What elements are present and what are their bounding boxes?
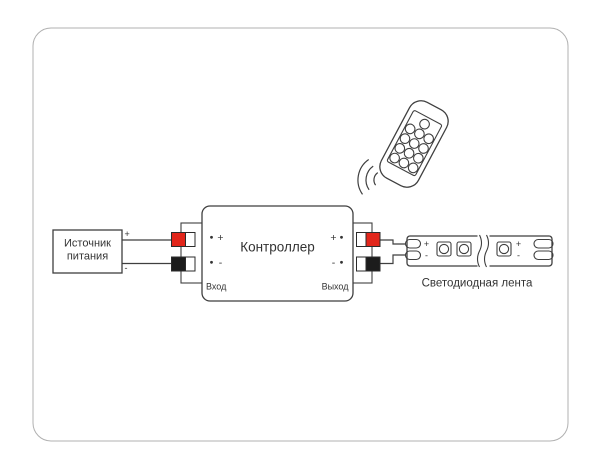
power-wires [122, 240, 172, 264]
strip-wire-plus [380, 240, 406, 244]
controller: Контроллер + - + - Вход Выход [202, 206, 353, 301]
input-plus-terminal [172, 233, 186, 247]
signal-wave-1 [374, 173, 378, 186]
remote-control [375, 96, 452, 192]
input-minus-label: - [219, 257, 223, 269]
strip-break [478, 234, 490, 268]
output-plus-dot [340, 236, 343, 239]
input-plus-label: + [217, 232, 223, 244]
signal-wave-2 [366, 166, 373, 190]
strip-left-plus-label: + [424, 239, 429, 249]
strip-wires [380, 240, 406, 264]
output-minus-dot [340, 261, 343, 264]
input-minus-clamp [186, 257, 196, 271]
strip-left-minus-label: - [425, 251, 428, 261]
strip-right-minus-label: - [517, 251, 520, 261]
controller-input-caption: Вход [206, 282, 227, 292]
power-plus-sign: + [125, 229, 130, 239]
input-plus-dot [210, 236, 213, 239]
output-plus-label: + [330, 232, 336, 244]
power-source-label-line1: Источник [64, 238, 111, 250]
output-minus-clamp [357, 257, 367, 271]
input-minus-dot [210, 261, 213, 264]
output-plus-clamp [357, 233, 367, 247]
input-connector [172, 223, 207, 283]
input-plus-clamp [186, 233, 196, 247]
led-strip-caption: Светодиодная лента [422, 278, 533, 290]
controller-label: Контроллер [240, 240, 315, 255]
signal-waves-icon [358, 160, 378, 195]
output-minus-terminal [366, 257, 380, 271]
strip-right-plus-label: + [516, 239, 521, 249]
power-minus-sign: - [125, 263, 128, 273]
power-source-label-line2: питания [67, 251, 108, 263]
output-minus-label: - [332, 257, 336, 269]
strip-wire-minus [380, 255, 406, 264]
power-source: Источник питания + - [53, 229, 130, 273]
led-strip: + - + - Светодиодная лента [406, 234, 554, 290]
wiring-diagram: Источник питания + - Контроллер + - + - … [0, 0, 600, 467]
signal-wave-3 [358, 160, 369, 195]
controller-output-caption: Выход [322, 282, 350, 292]
input-minus-terminal [172, 257, 186, 271]
output-plus-terminal [366, 233, 380, 247]
